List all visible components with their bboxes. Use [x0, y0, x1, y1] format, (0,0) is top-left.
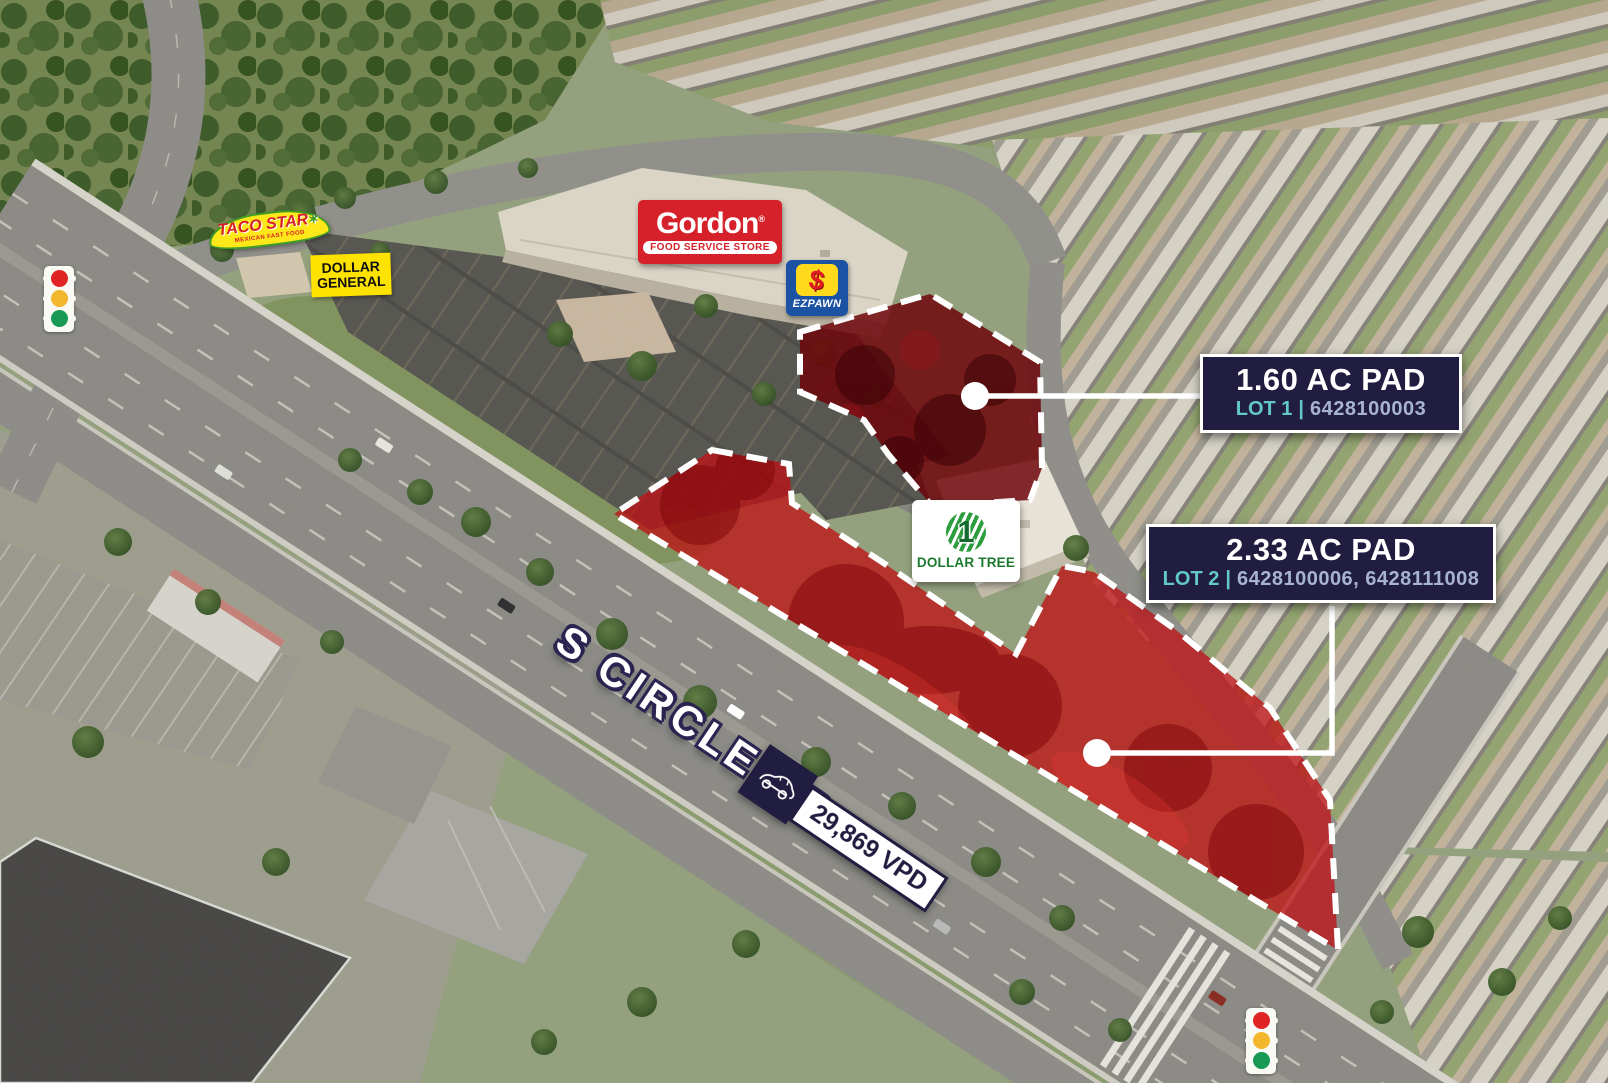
lot1-acreage-title: 1.60 AC PAD: [1215, 364, 1447, 396]
lot1-apn-line: LOT 1|6428100003: [1215, 398, 1447, 421]
gordon-name: Gordon: [656, 207, 758, 240]
dollar-sign-icon: $: [796, 264, 838, 296]
lot1-leader-dot: [961, 382, 989, 410]
green-light: [51, 310, 68, 327]
dollar-tree-name: DOLLAR TREE: [917, 555, 1015, 570]
star-icon: ✶: [307, 211, 320, 227]
dollar-general-name: DOLLAR GENERAL: [312, 259, 389, 292]
lot2-parcel-id: 6428100006, 6428111008: [1237, 568, 1479, 590]
green-light: [1253, 1052, 1270, 1069]
aerial-site-map: 1.60 AC PAD LOT 1|6428100003 2.33 AC PAD…: [0, 0, 1608, 1083]
traffic-light-icon: [1246, 1008, 1276, 1074]
ezpawn-logo: $ EZPAWN: [786, 260, 848, 316]
parcel-label-lot1: 1.60 AC PAD LOT 1|6428100003: [1200, 354, 1462, 433]
registered-mark: ®: [758, 214, 764, 224]
parcel-label-lot2: 2.33 AC PAD LOT 2|6428100006, 6428111008: [1146, 524, 1496, 603]
red-light: [1253, 1012, 1270, 1029]
amber-light: [51, 290, 68, 307]
lot2-leader-dot: [1083, 739, 1111, 767]
dollar-tree-globe-icon: 1: [946, 512, 986, 552]
ezpawn-name: EZPAWN: [793, 298, 842, 310]
gordon-subtitle-store: STORE: [734, 242, 770, 253]
gordon-food-service-logo: Gordon® FOOD SERVICE STORE: [638, 200, 782, 264]
dollar-tree-logo: 1 DOLLAR TREE: [912, 500, 1020, 582]
dollar-general-logo: DOLLAR GENERAL: [310, 253, 391, 298]
gordon-subtitle: FOOD SERVICE: [650, 242, 730, 253]
traffic-light-icon: [44, 266, 74, 332]
lot1-divider: |: [1298, 398, 1304, 420]
lot2-divider: |: [1225, 568, 1231, 590]
red-light: [51, 270, 68, 287]
lot2-number: LOT 2: [1163, 568, 1220, 590]
lot2-acreage-title: 2.33 AC PAD: [1161, 534, 1481, 566]
lot1-parcel-id: 6428100003: [1310, 398, 1426, 420]
lot2-apn-line: LOT 2|6428100006, 6428111008: [1161, 568, 1481, 591]
amber-light: [1253, 1032, 1270, 1049]
lot1-number: LOT 1: [1236, 398, 1293, 420]
